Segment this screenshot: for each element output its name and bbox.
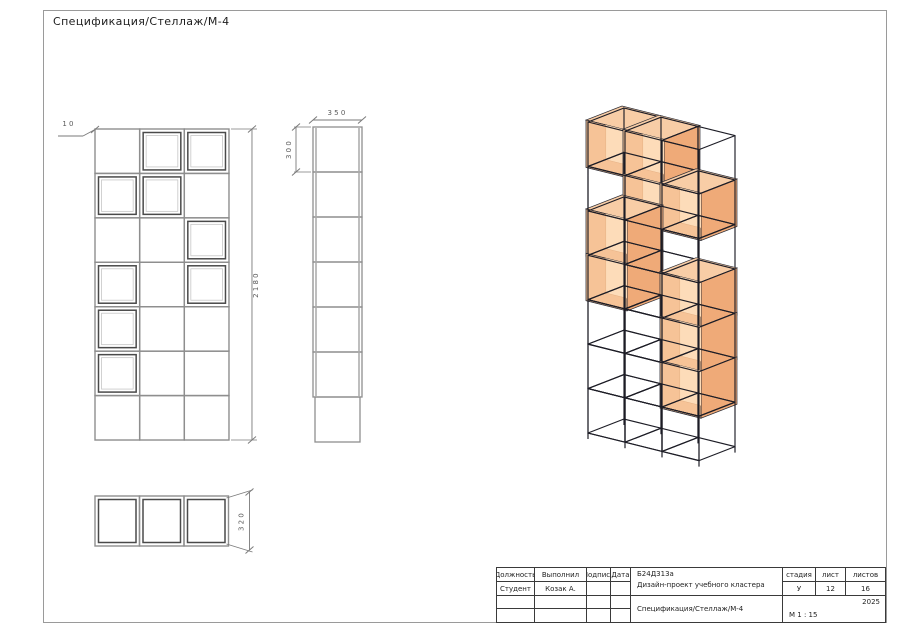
tb-date-header: Дата xyxy=(611,568,631,582)
svg-text:300: 300 xyxy=(285,139,293,159)
drawing-sheet: { "page": { "title": "Спецификация/Стелл… xyxy=(0,0,900,635)
tb-date-value xyxy=(611,582,631,596)
tb-project-cell: Б24Д313а Дизайн-проект учебного кластера xyxy=(631,568,783,596)
tb-empty-cell xyxy=(587,609,611,622)
tb-position-value: Студент xyxy=(497,582,535,596)
side-dimensions: 350300 xyxy=(285,109,366,176)
tb-doc-title: Спецификация/Стеллаж/М-4 xyxy=(631,596,783,622)
svg-text:320: 320 xyxy=(238,511,246,531)
tb-project-name: Дизайн-проект учебного кластера xyxy=(637,581,765,589)
tb-empty-cell xyxy=(611,596,631,609)
tb-sheet-value: 12 xyxy=(816,582,846,596)
drawing-canvas: 218010350300320 xyxy=(0,0,900,635)
tb-empty-cell xyxy=(535,596,587,609)
tb-empty-cell xyxy=(587,596,611,609)
tb-sheets-header: листов xyxy=(846,568,885,582)
tb-empty-cell xyxy=(535,609,587,622)
tb-scale: М 1 : 15 xyxy=(789,611,817,619)
bottom-view xyxy=(95,496,229,546)
tb-year: 2025 xyxy=(862,598,880,606)
tb-performed-value: Козак А. xyxy=(535,582,587,596)
tb-stage-header: стадия xyxy=(783,568,816,582)
tb-empty-cell xyxy=(611,609,631,622)
tb-empty-cell xyxy=(497,596,535,609)
tb-stage-value: У xyxy=(783,582,816,596)
tb-sheets-value: 16 xyxy=(846,582,885,596)
tb-sheet-header: лист xyxy=(816,568,846,582)
iso-view xyxy=(586,106,737,467)
front-view xyxy=(95,129,229,440)
tb-signature-value xyxy=(587,582,611,596)
tb-position-header: Должность xyxy=(497,568,535,582)
tb-performed-header: Выполнил xyxy=(535,568,587,582)
svg-text:350: 350 xyxy=(328,109,348,117)
tb-empty-cell xyxy=(497,609,535,622)
tb-signature-header: Подпись xyxy=(587,568,611,582)
title-block: Должность Выполнил Подпись Дата Студент … xyxy=(496,567,886,623)
svg-text:10: 10 xyxy=(62,120,75,128)
bottom-dimensions: 320 xyxy=(227,489,254,554)
side-view xyxy=(313,127,362,442)
svg-text:2180: 2180 xyxy=(252,271,260,298)
tb-project-code: Б24Д313а xyxy=(637,570,674,578)
tb-scale-cell: 2025 М 1 : 15 xyxy=(783,596,885,622)
